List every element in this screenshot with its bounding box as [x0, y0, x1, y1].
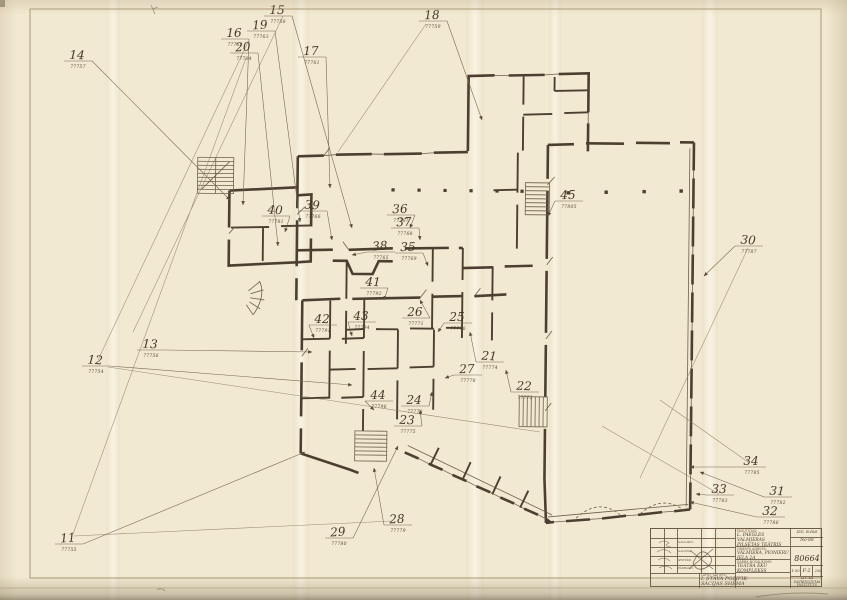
svg-text:31: 31 — [769, 484, 785, 499]
plan-annotation-22: 2277772 — [506, 370, 539, 401]
plan-annotation-41: 4177792 — [360, 275, 388, 300]
svg-text:42: 42 — [313, 312, 330, 326]
svg-text:22: 22 — [515, 379, 532, 394]
plan-annotation-12: 1277754 — [82, 352, 352, 385]
svg-text:77783: 77783 — [712, 498, 728, 504]
project-no-cell: 80664 — [791, 547, 823, 566]
stage-value: F-2 — [801, 566, 812, 577]
svg-text:77772: 77772 — [517, 395, 533, 401]
order-no: No-88 — [791, 538, 823, 543]
stairs-hall-lower — [519, 397, 547, 427]
org-cell: LVC KA SAVIENOJUMA INSTITŪTS — [791, 577, 823, 588]
svg-text:27: 27 — [458, 362, 475, 377]
svg-text:77780: 77780 — [331, 541, 347, 547]
svg-text:77755: 77755 — [61, 547, 77, 553]
work-line: TEĀTRA ĒKU KOMPLEKSS — [737, 564, 789, 573]
sheet-no: 230 — [813, 566, 823, 577]
svg-text:77756: 77756 — [143, 353, 159, 359]
plan-annotation-11: 1177755 — [55, 452, 305, 553]
stage-cells: 1:50 F-2 230 — [791, 566, 823, 577]
plan-annotation-27: 2777778 — [445, 362, 482, 384]
plan-annotation-37: 3777768 — [391, 215, 420, 240]
client-line1: L. PAEGLES VALMIERAS — [737, 533, 789, 543]
sheet-border — [30, 9, 821, 578]
address-cell: OBJEKTA ADRESE: VALMIERA, PIONIERU IELA … — [736, 547, 791, 560]
svg-text:77779: 77779 — [390, 528, 406, 534]
svg-text:13: 13 — [142, 337, 158, 352]
construction-lines — [73, 16, 748, 536]
plan-annotation-26: 2677771 — [402, 300, 430, 327]
svg-text:25: 25 — [448, 310, 464, 324]
svg-text:77754: 77754 — [88, 369, 104, 375]
annotation-layer: 1177755127775413777561477757157775816777… — [55, 3, 792, 553]
svg-text:14: 14 — [69, 48, 85, 63]
svg-text:16: 16 — [226, 26, 242, 40]
svg-text:77758: 77758 — [270, 19, 286, 25]
svg-text:41: 41 — [364, 275, 381, 290]
svg-text:77773: 77773 — [407, 409, 423, 415]
plan-annotation-30: 3077787 — [704, 232, 763, 276]
plan-annotation-18: 1877759 — [419, 8, 482, 120]
plan-annotation-45: 4577805 — [548, 188, 583, 216]
order-cell: No-88 — [791, 538, 823, 547]
sheet-title-cell: LAPAS SATURS: I. STĀVA POZIFIK- SĀCIJAS … — [699, 573, 791, 588]
svg-text:77759: 77759 — [425, 24, 441, 30]
svg-text:77765: 77765 — [373, 255, 389, 261]
plan-annotation-33: 3377783 — [696, 482, 734, 504]
svg-text:77781: 77781 — [268, 219, 284, 225]
plan-annotation-21: 2177774 — [470, 332, 504, 371]
svg-text:39: 39 — [304, 197, 321, 212]
svg-text:15: 15 — [269, 3, 285, 17]
plan-annotation-42: 4277791 — [309, 312, 337, 338]
svg-text:17: 17 — [303, 44, 319, 58]
svg-text:77786: 77786 — [763, 520, 779, 526]
plan-annotation-43: 4377794 — [348, 309, 376, 336]
plan-annotation-39: 3977766 — [299, 197, 332, 240]
plan-annotation-19: 1977763 — [247, 18, 300, 222]
svg-text:77766: 77766 — [305, 214, 321, 220]
work-cell: DARBA NOSAUKUMS: TEĀTRA ĒKU KOMPLEKSS — [736, 560, 791, 573]
svg-text:12: 12 — [87, 352, 103, 367]
svg-text:77792: 77792 — [366, 291, 382, 297]
svg-text:45: 45 — [559, 188, 576, 203]
plan-annotation-28: 2877779 — [374, 468, 412, 534]
stairs-top-left — [197, 157, 233, 193]
svg-text:30: 30 — [740, 232, 757, 247]
plan-annotation-32: 3277786 — [690, 502, 785, 526]
svg-text:77787: 77787 — [741, 249, 757, 255]
project-no: 80664 — [794, 554, 819, 563]
svg-text:43: 43 — [352, 309, 369, 323]
drawn-code: IZG. B.PAS — [791, 529, 823, 534]
svg-text:26: 26 — [406, 305, 423, 319]
stairs-bottom — [355, 431, 387, 461]
svg-text:77791: 77791 — [315, 328, 331, 334]
svg-text:11: 11 — [60, 530, 76, 545]
svg-text:38: 38 — [372, 238, 389, 253]
svg-text:77768: 77768 — [397, 231, 413, 237]
svg-text:77785: 77785 — [744, 470, 760, 476]
svg-text:18: 18 — [424, 8, 440, 23]
door-leaves — [227, 147, 555, 411]
plan-annotation-25: 2577776 — [438, 310, 472, 332]
scale-value: 1:50 — [791, 566, 800, 577]
stairs-curved-left — [246, 281, 264, 315]
plan-annotation-35: 3577769 — [395, 240, 428, 266]
svg-text:77771: 77771 — [408, 321, 424, 327]
floor-plan-drawing: 1177755127775413777561477757157775816777… — [0, 0, 847, 600]
svg-text:33: 33 — [711, 482, 727, 496]
svg-text:28: 28 — [388, 512, 405, 527]
svg-text:77796: 77796 — [371, 404, 387, 410]
svg-text:32: 32 — [762, 504, 778, 519]
svg-text:19: 19 — [252, 18, 268, 33]
svg-text:77761: 77761 — [304, 60, 320, 66]
drawn-cell: IZG. B.PAS — [791, 529, 823, 538]
svg-text:77769: 77769 — [401, 256, 417, 262]
svg-text:24: 24 — [405, 393, 422, 407]
svg-text:77778: 77778 — [460, 378, 476, 384]
svg-text:29: 29 — [329, 524, 347, 539]
plan-annotation-13: 1377756 — [137, 337, 312, 359]
svg-text:77757: 77757 — [70, 64, 86, 70]
svg-text:44: 44 — [369, 388, 386, 402]
svg-text:37: 37 — [396, 215, 412, 230]
svg-text:20: 20 — [234, 39, 252, 54]
org-line3: INSTITŪTS — [791, 584, 823, 588]
drawing-sheet: 1177755127775413777561477757157775816777… — [0, 0, 847, 600]
sheet-line2: SĀCIJAS SHĒMA — [701, 582, 788, 587]
plan-annotation-17: 1777761 — [298, 44, 330, 188]
svg-text:77776: 77776 — [450, 326, 466, 332]
svg-text:35: 35 — [400, 240, 416, 254]
plan-walls — [194, 69, 695, 524]
stairs-hall-upper — [525, 183, 549, 215]
plan-annotation-44: 4477796 — [365, 388, 393, 410]
title-block: GALV.ARH. GALV.INŽ. IZSTRĀD. PĀRBAUD. PA… — [650, 528, 822, 587]
svg-text:77764: 77764 — [236, 56, 252, 62]
address-line: VALMIERA, PIONIERU IELA 2A — [737, 551, 789, 560]
svg-text:77763: 77763 — [253, 34, 269, 40]
svg-text:77794: 77794 — [354, 325, 370, 331]
client-cell: PASŪTĪTĀJS: L. PAEGLES VALMIERAS PILSĒTA… — [736, 529, 791, 547]
svg-text:77775: 77775 — [400, 429, 416, 435]
svg-text:77774: 77774 — [482, 365, 498, 371]
svg-text:40: 40 — [266, 203, 283, 218]
svg-text:34: 34 — [743, 454, 758, 468]
svg-text:21: 21 — [480, 348, 497, 363]
svg-text:77805: 77805 — [561, 204, 577, 210]
